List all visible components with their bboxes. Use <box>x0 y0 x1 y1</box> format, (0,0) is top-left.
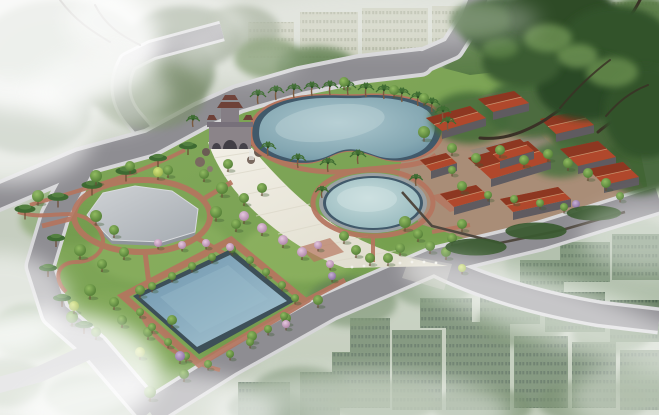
tree-shadow <box>88 297 99 301</box>
palm-crown <box>401 92 403 94</box>
round-tree <box>447 143 457 153</box>
palm-trunk <box>366 88 367 97</box>
round-tree <box>262 268 270 276</box>
palm-trunk <box>312 87 313 96</box>
round-tree <box>457 219 467 229</box>
round-tree <box>601 178 611 188</box>
tree-shadow <box>94 223 105 227</box>
round-tree <box>210 206 222 218</box>
palm-crown <box>417 96 419 98</box>
round-tree <box>246 256 254 264</box>
round-tree <box>278 281 286 289</box>
pink-tree <box>326 260 334 268</box>
pink-tree <box>297 247 307 257</box>
round-tree <box>351 245 361 255</box>
round-tree <box>457 181 467 191</box>
round-tree <box>148 282 156 290</box>
round-tree <box>484 191 492 199</box>
yel-tree <box>153 167 163 177</box>
round-tree <box>418 126 430 138</box>
round-tree <box>543 149 553 159</box>
bollard <box>399 262 402 265</box>
round-tree <box>168 272 176 280</box>
round-tree <box>563 158 573 168</box>
yel-tree <box>69 301 79 311</box>
round-tree <box>616 192 624 200</box>
hedge-bush <box>505 222 566 239</box>
palm-crown <box>329 85 331 87</box>
tree-shadow <box>36 203 47 207</box>
round-tree <box>125 161 135 171</box>
round-tree <box>204 360 212 368</box>
pink-tree <box>239 211 249 221</box>
palm-crown <box>365 87 367 89</box>
pink-tree <box>257 223 267 233</box>
round-tree <box>495 145 505 155</box>
round-tree <box>223 159 233 169</box>
water-highlight <box>337 186 397 212</box>
palm-trunk <box>322 191 323 199</box>
umbrella-tree-top <box>52 193 65 198</box>
round-tree <box>167 315 177 325</box>
fog-patch <box>180 38 300 82</box>
round-tree <box>365 253 375 263</box>
tree-shadow <box>78 257 89 261</box>
umbrella-tree-top <box>19 205 32 210</box>
purple-tree <box>175 351 185 361</box>
palm-crown <box>257 94 259 96</box>
umbrella-tree-top <box>153 154 164 158</box>
round-tree <box>90 210 102 222</box>
pink-tree <box>178 241 186 249</box>
round-tree <box>399 216 411 228</box>
round-tree <box>84 284 96 296</box>
waterfall <box>249 150 254 160</box>
gate-roof-tier1 <box>217 102 243 108</box>
palm-trunk <box>294 89 295 98</box>
round-tree <box>448 166 456 174</box>
round-tree <box>419 93 429 103</box>
pink-tree <box>314 241 322 249</box>
round-tree <box>199 169 209 179</box>
round-tree <box>208 253 216 261</box>
round-tree <box>536 199 544 207</box>
palm-trunk <box>268 147 269 156</box>
palm-crown <box>415 178 417 180</box>
round-tree <box>216 182 228 194</box>
fog-patch <box>30 52 170 132</box>
tree-shadow <box>214 219 225 223</box>
purple-tree <box>328 272 336 280</box>
pink-tree <box>202 239 210 247</box>
tree-shadow <box>220 195 231 199</box>
round-tree <box>119 247 129 257</box>
round-tree <box>109 297 119 307</box>
palm-trunk <box>330 86 331 95</box>
round-tree <box>164 338 172 346</box>
round-tree <box>135 285 145 295</box>
round-tree <box>510 195 518 203</box>
round-tree <box>389 85 399 95</box>
round-tree <box>264 325 272 333</box>
palm-trunk <box>418 97 419 106</box>
umbrella-tree-top <box>51 234 62 238</box>
palm-trunk <box>402 93 403 102</box>
round-tree <box>395 243 405 253</box>
gate-tower <box>221 106 239 122</box>
palm-trunk <box>276 91 277 100</box>
round-tree <box>425 241 435 251</box>
palm-trunk <box>384 90 385 99</box>
palm-crown <box>431 102 433 104</box>
round-tree <box>226 350 234 358</box>
palm-crown <box>357 154 359 156</box>
tree-shadow <box>403 229 414 233</box>
round-tree <box>74 244 86 256</box>
park-masterplan-rendering <box>0 0 659 415</box>
foliage-mass <box>558 44 598 68</box>
palm-crown <box>447 121 449 123</box>
tree-shadow <box>94 183 105 187</box>
round-tree <box>291 294 299 302</box>
palm-crown <box>267 146 269 148</box>
round-tree <box>313 295 323 305</box>
palm-trunk <box>258 95 259 104</box>
hedge-bush <box>445 238 506 255</box>
palm-trunk <box>193 120 194 128</box>
pink-tree <box>154 239 162 247</box>
bollard <box>351 266 354 269</box>
round-tree <box>257 183 267 193</box>
pink-tree <box>278 235 288 245</box>
round-tree <box>109 225 119 235</box>
round-tree <box>280 312 288 320</box>
gate-cornice <box>207 122 253 127</box>
umbrella-tree-top <box>183 142 194 146</box>
round-tree <box>413 229 423 239</box>
palm-trunk <box>416 179 417 187</box>
palm-trunk <box>443 111 444 120</box>
round-tree <box>188 262 196 270</box>
palm-crown <box>293 88 295 90</box>
tree-shadow <box>422 139 433 143</box>
palm-crown <box>321 190 323 192</box>
round-tree <box>90 170 102 182</box>
palm-crown <box>327 162 329 164</box>
round-tree <box>97 259 107 269</box>
round-tree <box>239 193 249 203</box>
pink-tree <box>282 320 290 328</box>
palm-trunk <box>432 103 433 112</box>
palm-crown <box>192 119 194 121</box>
palm-crown <box>275 90 277 92</box>
palm-trunk <box>328 163 329 172</box>
round-tree <box>383 253 393 263</box>
round-tree <box>117 315 127 325</box>
palm-trunk <box>358 155 359 164</box>
palm-crown <box>442 110 444 112</box>
foliage-mass <box>482 38 518 58</box>
palm-crown <box>311 86 313 88</box>
round-tree <box>148 323 156 331</box>
round-tree <box>339 231 349 241</box>
round-tree <box>163 165 173 175</box>
round-tree <box>339 77 349 87</box>
palm-crown <box>383 89 385 91</box>
round-tree <box>471 153 481 163</box>
palm-trunk <box>448 122 449 131</box>
palm-crown <box>297 158 299 160</box>
pink-tree <box>226 243 234 251</box>
round-tree <box>246 338 254 346</box>
round-tree <box>231 219 241 229</box>
round-tree <box>583 168 593 178</box>
round-tree <box>136 308 144 316</box>
aerial-rendering-canvas <box>0 0 659 415</box>
round-tree <box>519 155 529 165</box>
palm-trunk <box>298 159 299 168</box>
bollard <box>363 265 366 268</box>
round-tree <box>560 203 568 211</box>
round-tree <box>32 190 44 202</box>
